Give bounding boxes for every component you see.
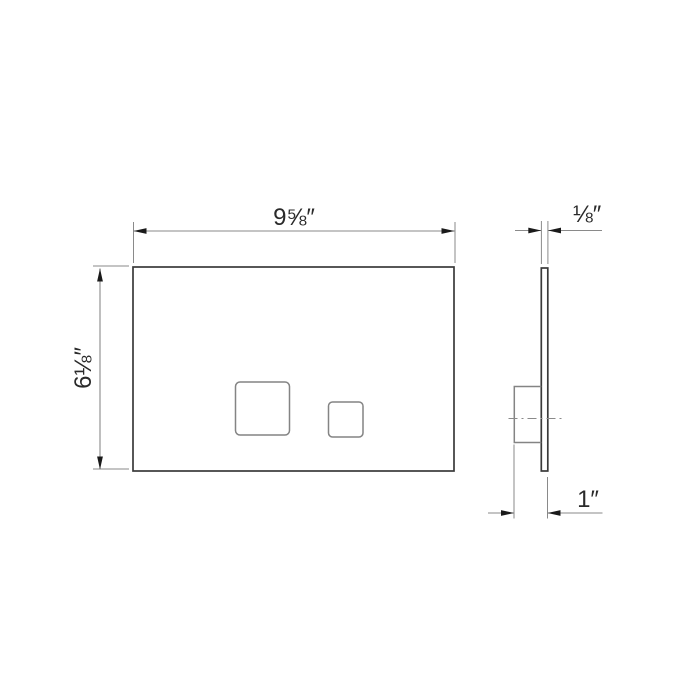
depth-dimension-label: 1″ (577, 486, 599, 513)
depth-dimension: 1″ (488, 445, 603, 519)
arrowhead-right (548, 228, 561, 234)
plate-side-profile (541, 268, 548, 471)
front-view (133, 267, 454, 471)
thickness-dimension-label: ⅛″ (573, 201, 602, 228)
width-dimension: 9⅝″ (134, 204, 456, 263)
mounting-block (514, 387, 541, 443)
small-button-square (329, 402, 364, 437)
height-dimension-label: 6⅛″ (70, 347, 97, 389)
arrowhead-top (97, 269, 103, 282)
width-dimension-label: 9⅝″ (273, 204, 315, 231)
arrowhead-right (548, 510, 561, 516)
arrowhead-left (134, 228, 147, 234)
large-button-square (236, 382, 290, 435)
arrowhead-left (501, 510, 514, 516)
height-dimension: 6⅛″ (70, 266, 129, 470)
side-view (509, 268, 566, 471)
plate-front-outline (133, 267, 454, 471)
arrowhead-right (442, 228, 455, 234)
arrowhead-left (528, 228, 541, 234)
arrowhead-bottom (97, 457, 103, 470)
drawing-page: 9⅝″ 6⅛″ ⅛″ (0, 0, 700, 700)
technical-drawing-canvas: 9⅝″ 6⅛″ ⅛″ (0, 0, 700, 700)
thickness-dimension: ⅛″ (515, 201, 602, 264)
